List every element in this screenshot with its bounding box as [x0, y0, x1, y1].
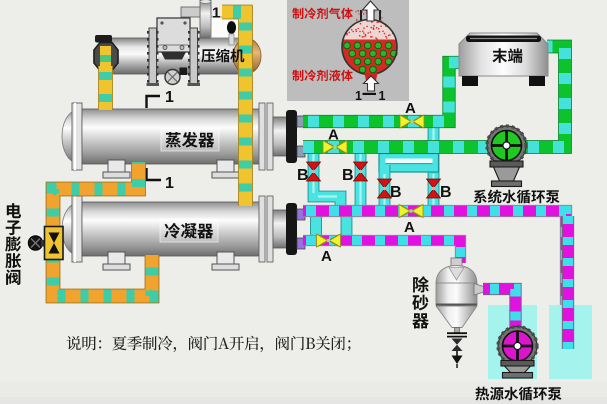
svg-text:1: 1 — [355, 89, 362, 103]
svg-text:B: B — [342, 167, 354, 184]
svg-text:B: B — [390, 184, 402, 201]
svg-text:1: 1 — [212, 5, 220, 22]
svg-text:1: 1 — [165, 175, 174, 192]
svg-text:A: A — [328, 127, 339, 144]
svg-text:1: 1 — [379, 89, 386, 103]
svg-text:A: A — [404, 219, 415, 236]
svg-text:1: 1 — [165, 89, 174, 106]
svg-text:A: A — [405, 100, 416, 117]
svg-text:B: B — [440, 184, 452, 201]
svg-text:A: A — [321, 248, 332, 265]
svg-text:B: B — [297, 167, 309, 184]
